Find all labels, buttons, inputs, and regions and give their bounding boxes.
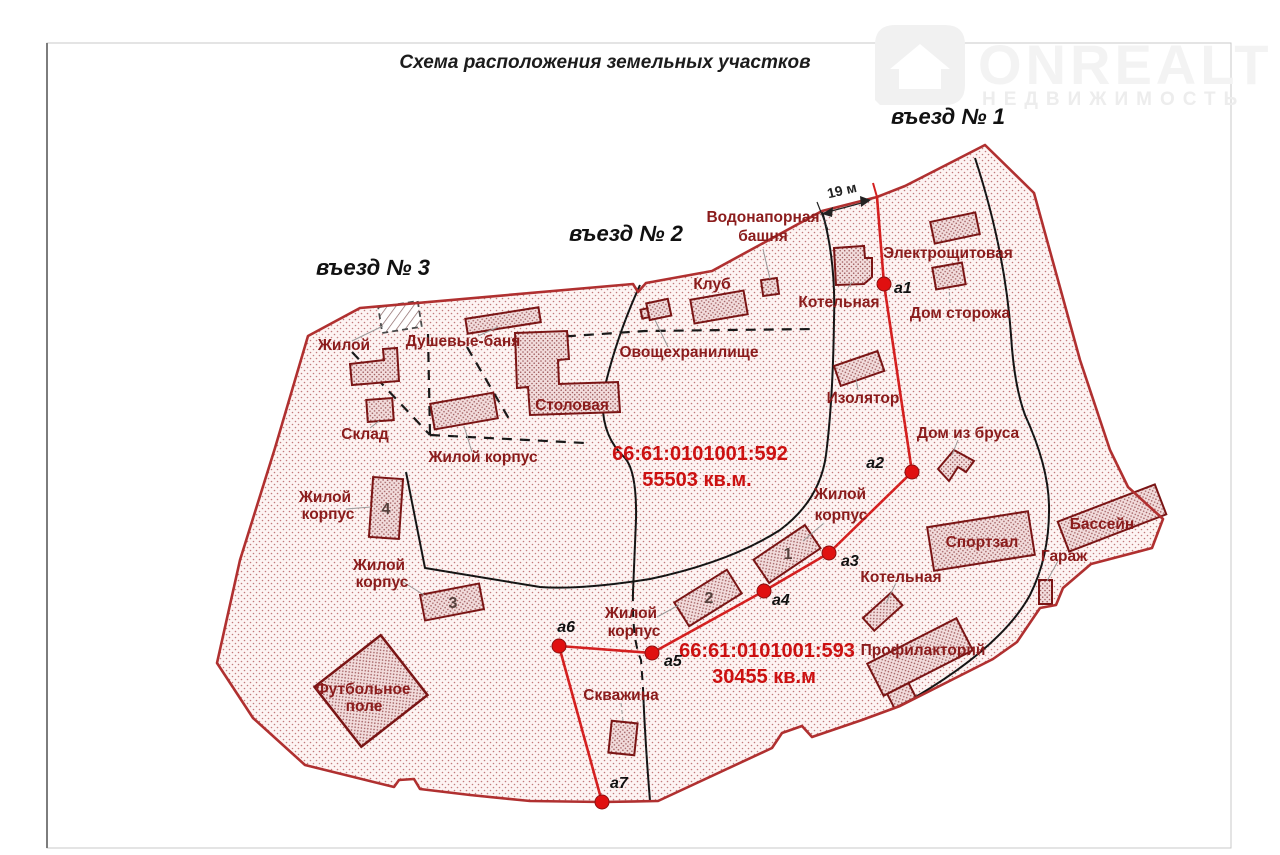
scheme-map: ONREALT НЕДВИЖИМОСТЬ Схема расположения … <box>0 0 1280 855</box>
label-zhiloy-korpus-center: Жилой корпус <box>427 449 538 466</box>
point-a3-dot <box>822 546 836 560</box>
point-a7-label: а7 <box>610 775 629 792</box>
label-vodonapornaya-1: Водонапорная <box>706 209 819 226</box>
label-zhiloy-korpus-a5-1: Жилой <box>604 605 657 622</box>
building-vodonapornaya-bashnya <box>761 278 779 296</box>
building-skvazhina <box>608 721 637 756</box>
divider-extension-tick <box>873 183 877 197</box>
point-a4-label: а4 <box>772 592 790 609</box>
building-garazh <box>1039 580 1052 604</box>
building-number-1: 1 <box>784 546 793 563</box>
point-a4-dot <box>757 584 771 598</box>
label-garazh: Гараж <box>1041 548 1088 565</box>
entrance-1-label: въезд № 1 <box>891 104 1005 129</box>
parcel-592-cadastral-number: 66:61:0101001:592 <box>612 443 788 465</box>
point-a6-label: а6 <box>557 619 575 636</box>
label-zhiloy-korpus-right-2: корпус <box>815 507 868 524</box>
label-dom-storozha: Дом сторожа <box>910 305 1011 322</box>
label-sklad: Склад <box>341 426 389 443</box>
label-zhiloy-korpus-3-1: Жилой <box>352 557 405 574</box>
label-zhiloy: Жилой <box>317 337 370 354</box>
point-a1-dot <box>877 277 891 291</box>
label-dushevye-banya: Душевые-баня <box>406 333 521 350</box>
onrealt-logo: ONREALT НЕДВИЖИМОСТЬ <box>875 25 1273 110</box>
label-elektroshchitovaya: Электрощитовая <box>883 245 1013 262</box>
land-plot-scheme-page: ONREALT НЕДВИЖИМОСТЬ Схема расположения … <box>0 0 1280 855</box>
label-zhiloy-korpus-4-2: корпус <box>302 506 355 523</box>
building-sklad <box>366 398 393 422</box>
building-number-4: 4 <box>382 501 391 518</box>
label-pole: поле <box>346 698 383 715</box>
label-profilaktoriy: Профилакторий <box>861 642 986 659</box>
entrance-2-label: въезд № 2 <box>569 221 684 246</box>
dimension-label: 19 м <box>826 179 859 201</box>
point-a2-dot <box>905 465 919 479</box>
point-a1-label: а1 <box>894 280 912 297</box>
point-a2-label: а2 <box>866 455 884 472</box>
label-izolyator: Изолятор <box>827 390 900 407</box>
label-dom-iz-brusa: Дом из бруса <box>917 425 1020 442</box>
label-sportzal: Спортзал <box>946 534 1019 551</box>
entrance-3-label: въезд № 3 <box>316 255 430 280</box>
label-kotelnaya-top: Котельная <box>798 294 879 311</box>
point-a3-label: а3 <box>841 553 859 570</box>
label-zhiloy-korpus-a5-2: корпус <box>608 623 661 640</box>
label-kotelnaya-bottom: Котельная <box>860 569 941 586</box>
parcel-593-area: 30455 кв.м <box>712 666 816 688</box>
building-number-2: 2 <box>705 590 714 607</box>
point-a7-dot <box>595 795 609 809</box>
point-a5-label: а5 <box>664 653 683 670</box>
parcel-592-area: 55503 кв.м. <box>642 469 751 491</box>
logo-tagline-text: НЕДВИЖИМОСТЬ <box>982 89 1245 110</box>
page-title: Схема расположения земельных участков <box>399 52 810 73</box>
label-zhiloy-korpus-right-1: Жилой <box>813 486 866 503</box>
label-zhiloy-korpus-4-1: Жилой <box>298 489 351 506</box>
building-number-3: 3 <box>449 595 458 612</box>
label-klub: Клуб <box>693 276 730 293</box>
point-a5-dot <box>645 646 659 660</box>
label-ovoshchekhranilishche: Овощехранилище <box>619 344 758 361</box>
parcel-593-cadastral-number: 66:61:0101001:593 <box>679 640 855 662</box>
building-dom-storozha <box>932 263 965 290</box>
label-vodonapornaya-2: башня <box>738 228 788 245</box>
label-skvazhina: Скважина <box>583 687 659 704</box>
label-stolovaya: Столовая <box>535 397 609 414</box>
label-zhiloy-korpus-3-2: корпус <box>356 574 409 591</box>
logo-brand-text: ONREALT <box>978 33 1273 96</box>
point-a6-dot <box>552 639 566 653</box>
label-futbolnoe: Футбольное <box>315 681 410 698</box>
label-bassein: Бассейн <box>1070 516 1135 533</box>
